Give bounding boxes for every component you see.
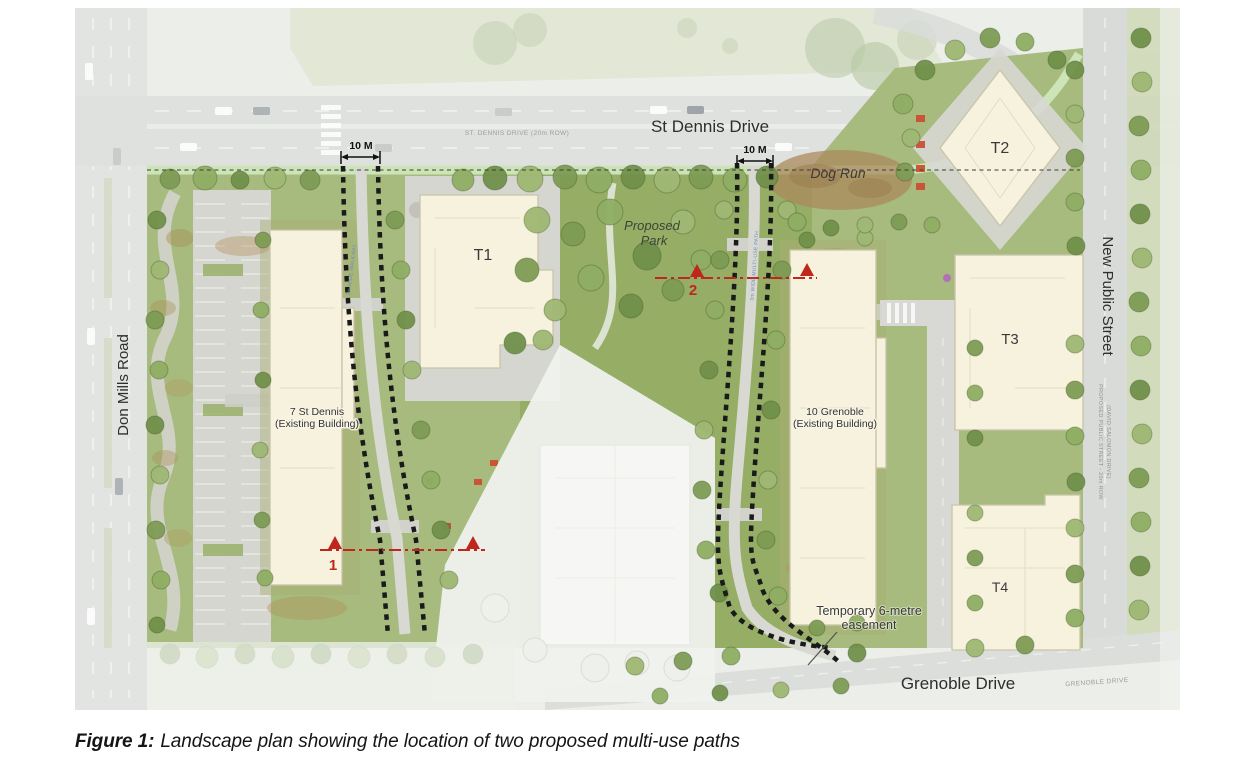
street-label-don-mills: Don Mills Road bbox=[115, 334, 132, 436]
building-label-7-st-dennis-line2: (Existing Building) bbox=[275, 418, 359, 430]
figure-caption: Figure 1:Landscape plan showing the loca… bbox=[75, 731, 740, 753]
dimension-label-west-10m: 10 M bbox=[349, 140, 373, 152]
easement-label-line2: easement bbox=[842, 618, 897, 632]
building-10-grenoble bbox=[790, 250, 886, 625]
dimension-label-east-10m: 10 M bbox=[743, 144, 767, 156]
street-label-st-dennis-small: ST. DENNIS DRIVE (20m ROW) bbox=[465, 130, 569, 137]
easement-label-line1: Temporary 6-metre bbox=[816, 604, 922, 618]
street-label-david-salomon-small: (DAVID SALOMON DRIVE) bbox=[1105, 405, 1111, 479]
building-label-7-st-dennis-line1: 7 St Dennis bbox=[290, 406, 344, 418]
section-marker-1-label: 1 bbox=[329, 557, 337, 574]
landscape-plan: St Dennis Drive ST. DENNIS DRIVE (20m RO… bbox=[75, 8, 1180, 710]
building-label-t1: T1 bbox=[474, 247, 493, 264]
landscape-plan-figure: St Dennis Drive ST. DENNIS DRIVE (20m RO… bbox=[75, 8, 1180, 710]
proposed-park-label-line1: Proposed bbox=[624, 218, 680, 233]
figure-caption-prefix: Figure 1: bbox=[75, 731, 154, 752]
street-label-proposed-public-small: PROPOSED PUBLIC STREET - 20m ROW bbox=[1097, 384, 1103, 500]
dog-run-label: Dog Run bbox=[810, 165, 865, 181]
fade-overlay bbox=[147, 642, 515, 710]
proposed-park-label-line2: Park bbox=[641, 233, 669, 248]
street-label-grenoble: Grenoble Drive bbox=[901, 674, 1015, 693]
section-marker-2-label: 2 bbox=[689, 282, 697, 299]
building-label-t4: T4 bbox=[992, 579, 1009, 595]
figure-caption-text: Landscape plan showing the location of t… bbox=[160, 731, 740, 752]
street-label-new-public: New Public Street bbox=[1099, 236, 1116, 356]
document-page: St Dennis Drive ST. DENNIS DRIVE (20m RO… bbox=[0, 0, 1238, 776]
building-label-10-grenoble-line2: (Existing Building) bbox=[793, 418, 877, 430]
building-label-10-grenoble-line1: 10 Grenoble bbox=[806, 406, 864, 418]
building-label-t2: T2 bbox=[991, 140, 1010, 157]
street-label-st-dennis: St Dennis Drive bbox=[651, 117, 769, 136]
building-label-t3: T3 bbox=[1001, 331, 1019, 348]
